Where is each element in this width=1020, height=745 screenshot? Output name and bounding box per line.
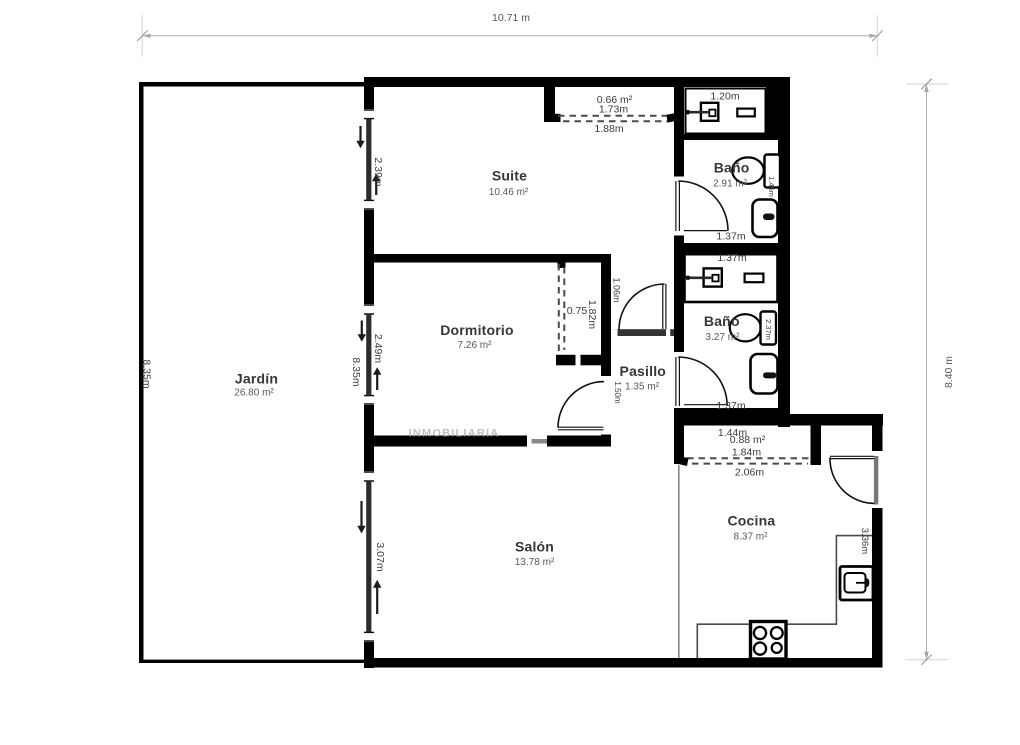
svg-text:1.06m: 1.06m (611, 277, 621, 302)
svg-text:1.35 m²: 1.35 m² (625, 382, 660, 393)
svg-text:2.37m: 2.37m (764, 319, 773, 340)
svg-text:Salón: Salón (515, 539, 554, 555)
svg-text:1.88m: 1.88m (594, 123, 623, 135)
svg-text:8.35m: 8.35m (350, 357, 362, 386)
svg-text:8.37 m²: 8.37 m² (734, 531, 769, 542)
svg-text:3.36m: 3.36m (859, 528, 870, 554)
svg-text:Baño: Baño (714, 160, 750, 176)
svg-text:1.82m: 1.82m (586, 300, 598, 329)
svg-text:Cocina: Cocina (727, 512, 775, 528)
svg-text:2.06m: 2.06m (735, 467, 764, 479)
svg-text:10.46 m²: 10.46 m² (489, 187, 529, 198)
svg-text:1.73m: 1.73m (599, 104, 628, 116)
svg-text:3.07m: 3.07m (374, 542, 386, 571)
svg-text:2.39m: 2.39m (372, 157, 384, 186)
svg-text:1.50m: 1.50m (613, 381, 622, 404)
svg-text:Baño: Baño (704, 313, 740, 329)
svg-text:0.75: 0.75 (567, 305, 588, 317)
svg-text:3.27 m²: 3.27 m² (706, 332, 741, 343)
svg-text:1.37m: 1.37m (716, 231, 745, 243)
svg-text:Pasillo: Pasillo (620, 363, 667, 379)
svg-text:13.78 m²: 13.78 m² (515, 557, 555, 568)
svg-text:26.80 m²: 26.80 m² (234, 388, 274, 399)
svg-text:Dormitorio: Dormitorio (440, 322, 514, 338)
svg-text:1.84m: 1.84m (732, 447, 761, 459)
svg-text:1.37m: 1.37m (717, 252, 746, 264)
svg-text:0.88 m²: 0.88 m² (730, 434, 766, 446)
svg-text:1.20m: 1.20m (710, 91, 739, 103)
svg-text:Jardín: Jardín (235, 371, 278, 387)
svg-text:8.35m: 8.35m (141, 359, 153, 388)
svg-text:INMOBILIARIA: INMOBILIARIA (409, 428, 500, 440)
svg-text:7.26 m²: 7.26 m² (458, 340, 493, 351)
svg-text:10.71 m: 10.71 m (492, 12, 530, 24)
svg-text:2.91 m²: 2.91 m² (713, 179, 748, 190)
svg-text:1.37m: 1.37m (716, 400, 745, 412)
svg-text:8.40 m: 8.40 m (943, 356, 955, 388)
svg-text:1.45m: 1.45m (767, 176, 776, 197)
svg-text:2.49m: 2.49m (372, 334, 384, 363)
svg-text:Suite: Suite (492, 168, 527, 184)
